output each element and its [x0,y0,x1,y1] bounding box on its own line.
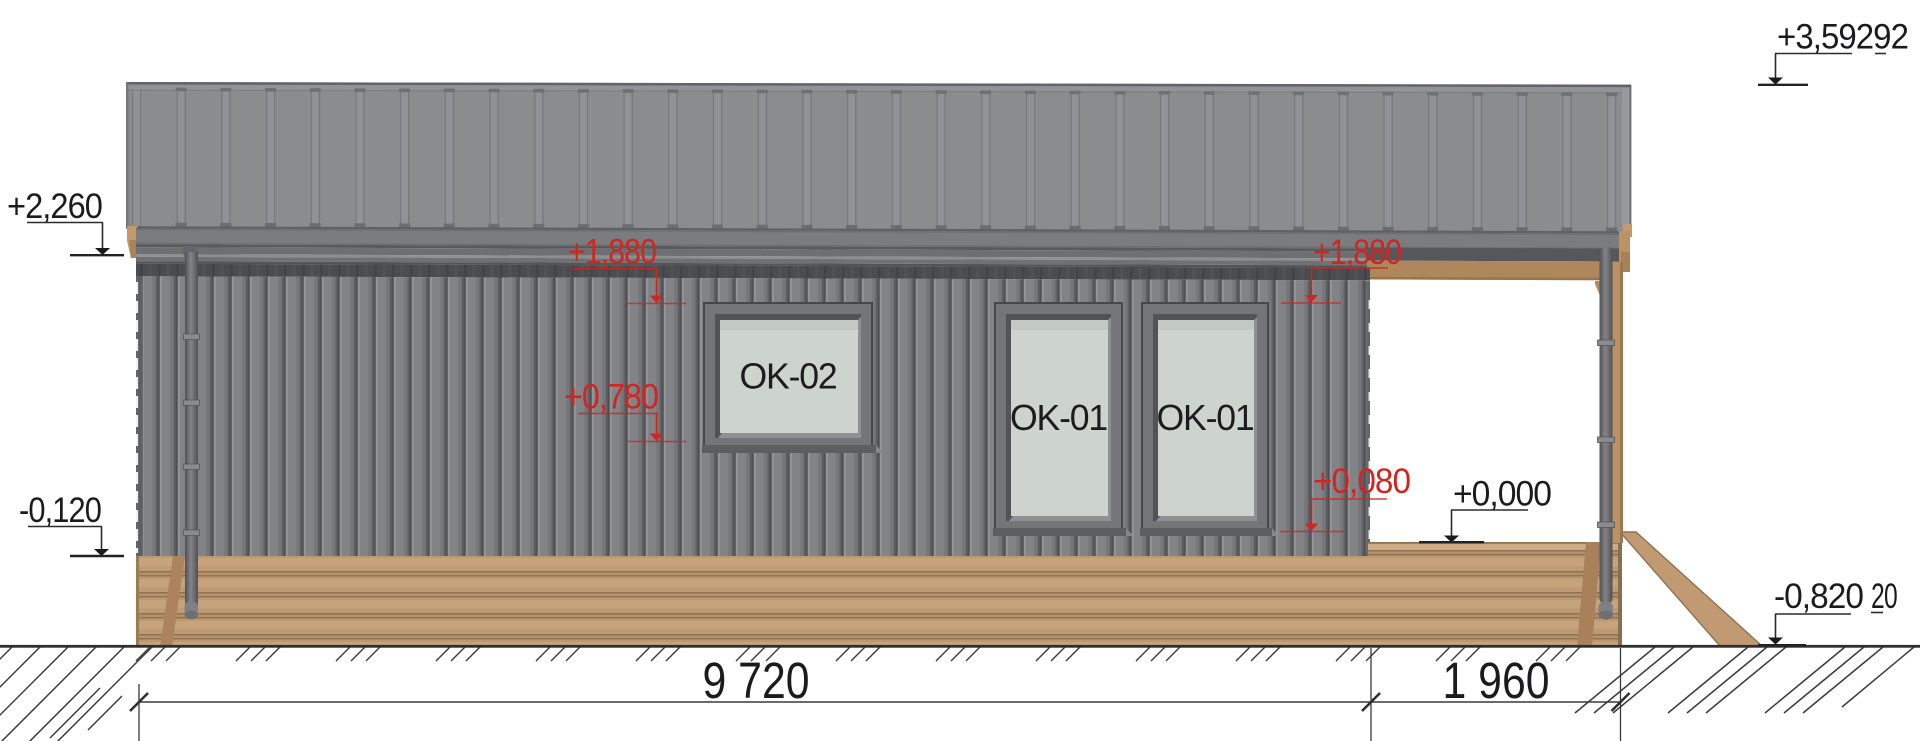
svg-text:+3,59292: +3,59292 [1777,18,1908,57]
svg-text:9 720: 9 720 [703,652,810,709]
svg-text:+0,080: +0,080 [1313,462,1411,501]
svg-text:+2,260: +2,260 [7,187,102,226]
svg-text:1 960: 1 960 [1443,652,1550,709]
svg-text:+0,000: +0,000 [1453,475,1552,514]
svg-text:+1,880: +1,880 [568,233,656,272]
svg-text:20: 20 [1871,577,1897,616]
svg-text:-0,820: -0,820 [1774,577,1864,616]
svg-text:+1,880: +1,880 [1313,233,1401,272]
svg-text:OK-02: OK-02 [740,356,837,397]
svg-text:-0,120: -0,120 [19,491,101,530]
svg-text:+0,780: +0,780 [564,378,658,417]
svg-text:OK-01: OK-01 [1010,397,1107,438]
svg-text:OK-01: OK-01 [1157,397,1254,438]
